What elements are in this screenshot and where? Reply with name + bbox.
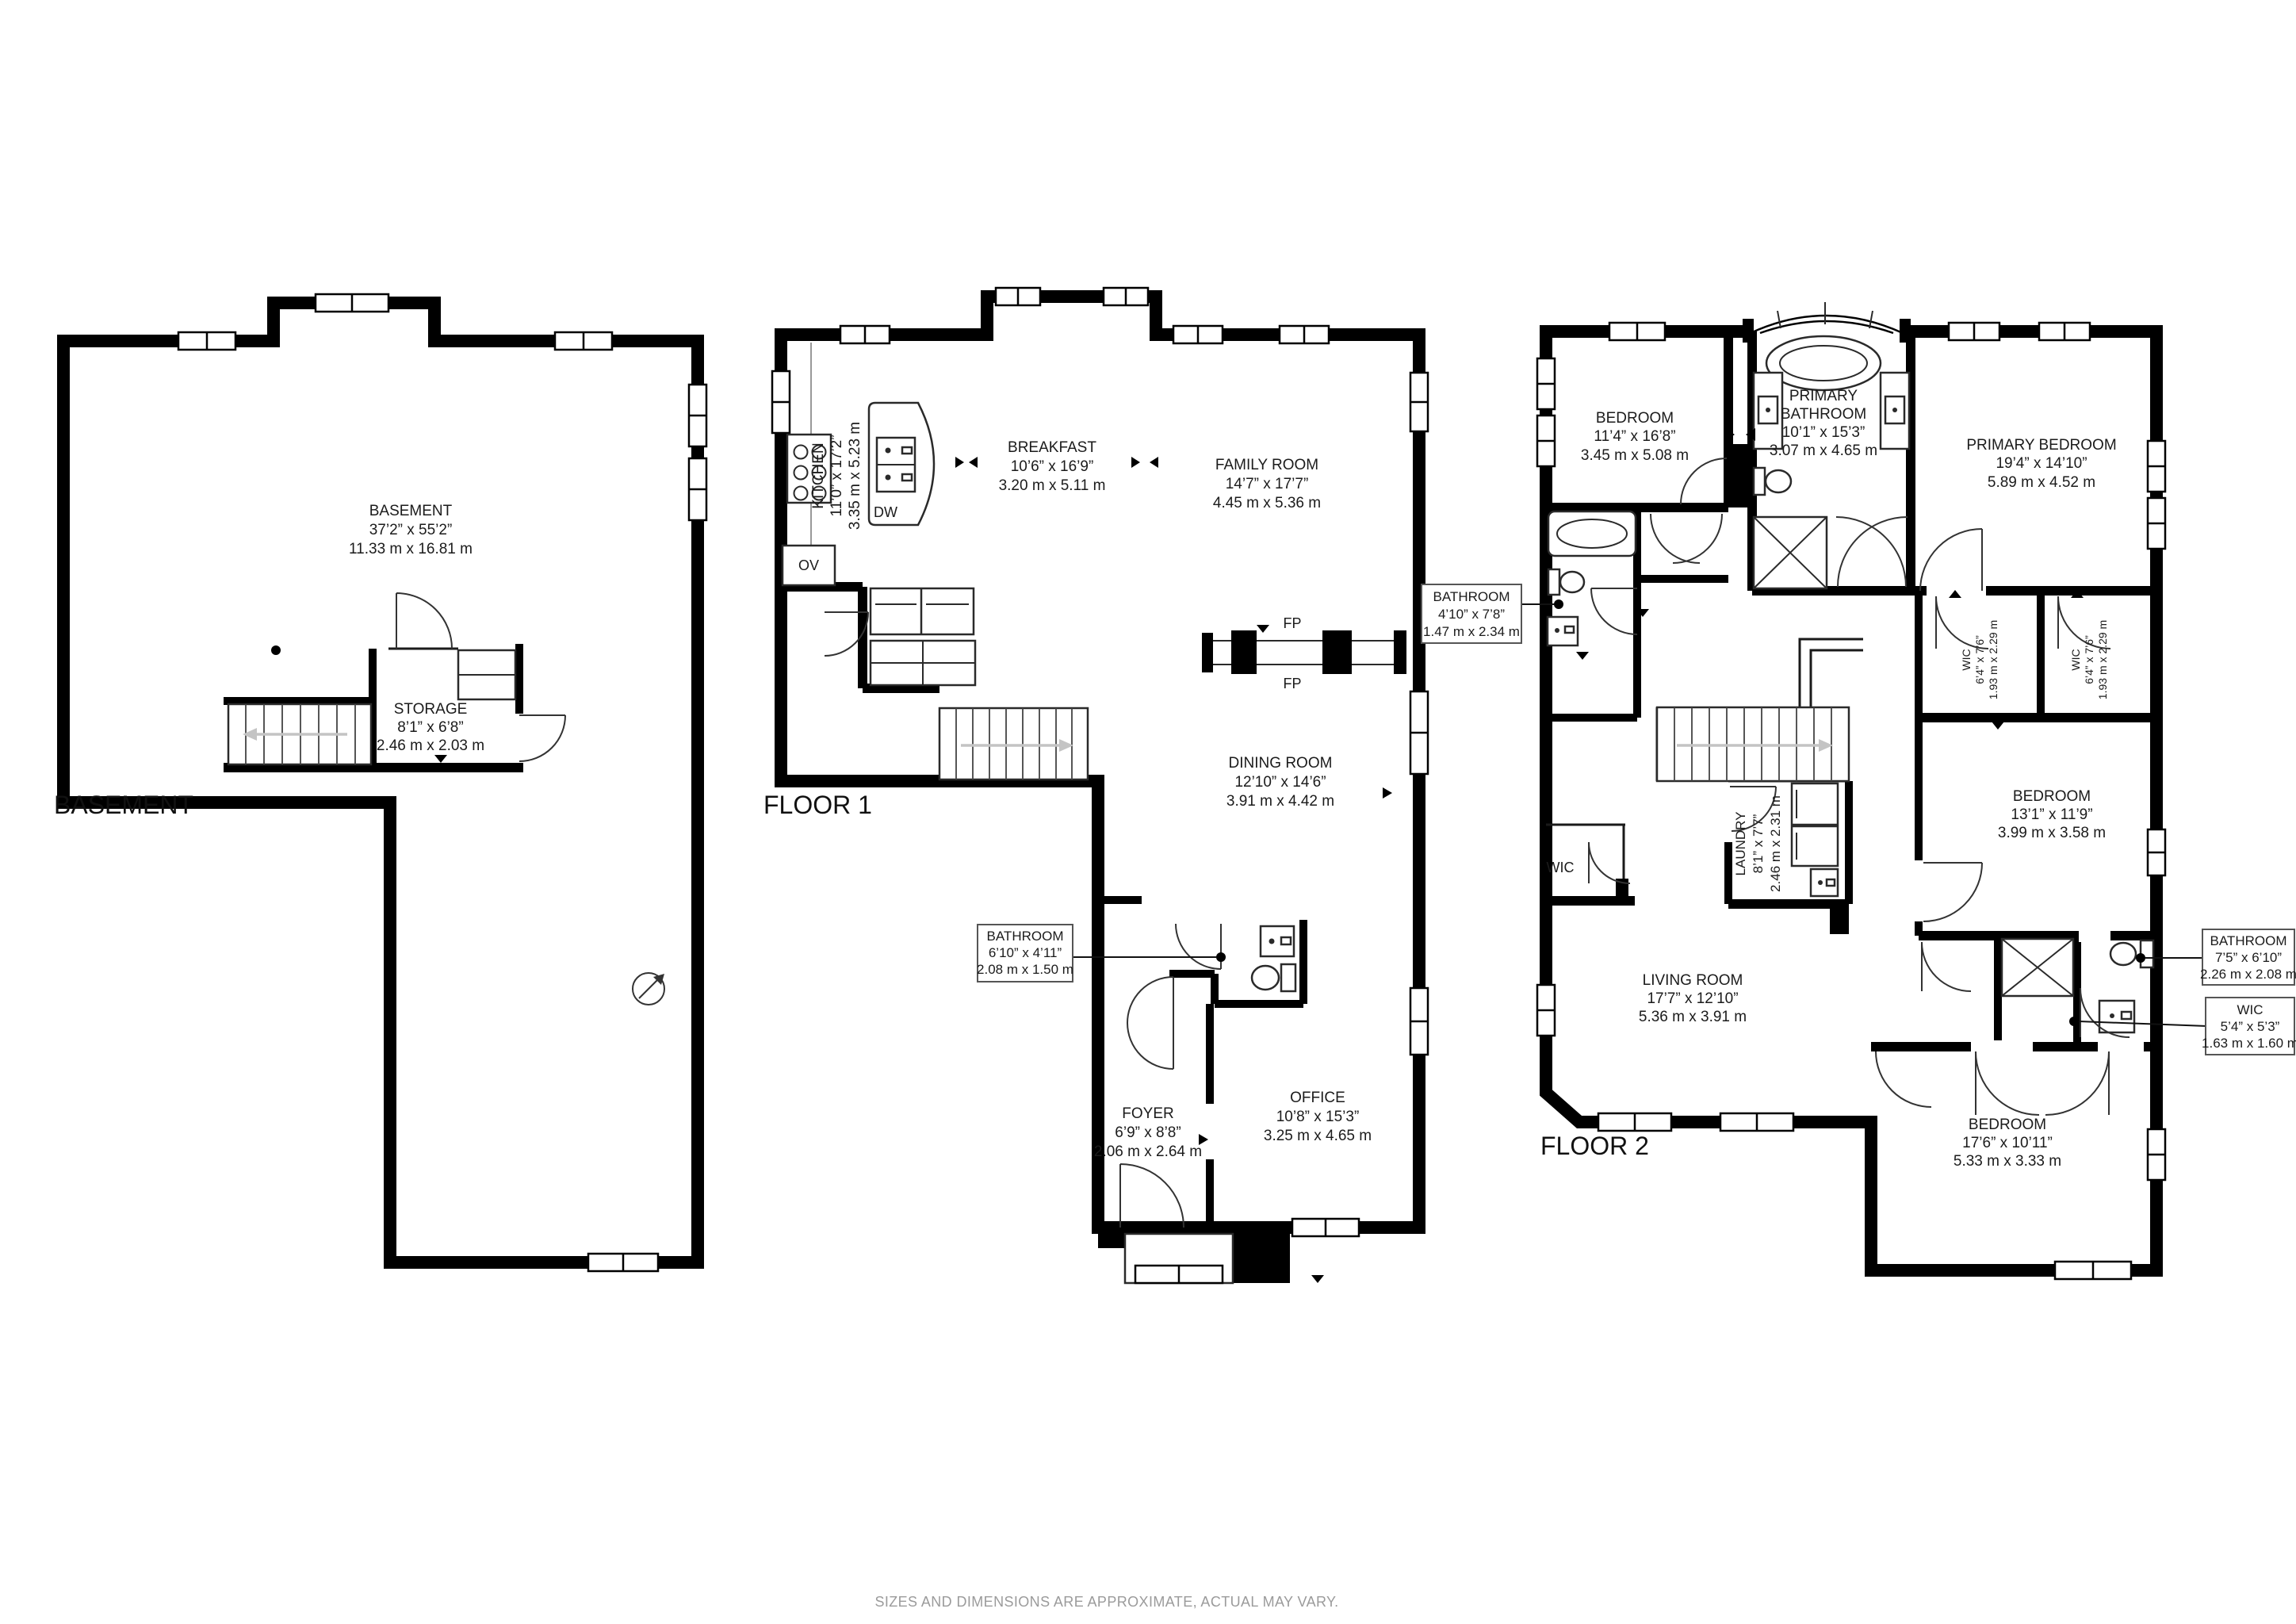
dining-room-label: DINING ROOM 12’10” x 14’6” 3.91 m x 4.42… — [1226, 755, 1334, 810]
bathroom1-imperial: 6’10” x 4’11” — [989, 945, 1062, 960]
office-metric: 3.25 m x 4.65 m — [1264, 1128, 1372, 1144]
kitchen-imperial: 11’0” x 17’2” — [828, 435, 845, 516]
bedroom-mid-label: BEDROOM 13’1” x 11’9” 3.99 m x 3.58 m — [1998, 788, 2106, 841]
bathroom2l-imperial: 4’10” x 7’8” — [1438, 607, 1505, 622]
linen-closet-icon — [2002, 939, 2073, 996]
basement-leader-dot — [271, 645, 281, 655]
foyer-imperial: 6’9” x 8’8” — [1115, 1124, 1181, 1141]
living-room-name: LIVING ROOM — [1643, 972, 1743, 989]
bathroom1-metric: 2.08 m x 1.50 m — [977, 962, 1073, 977]
wic-a-name: WIC — [1960, 649, 1973, 670]
living-room-label: LIVING ROOM 17’7” x 12’10” 5.36 m x 3.91… — [1639, 972, 1747, 1025]
primary-bathroom-imperial: 10’1” x 15’3” — [1782, 424, 1865, 441]
foyer-metric: 2.06 m x 2.64 m — [1094, 1143, 1202, 1160]
basement-title: BASEMENT — [54, 791, 193, 819]
storage-metric: 2.46 m x 2.03 m — [377, 737, 484, 754]
office-name: OFFICE — [1290, 1090, 1345, 1106]
dining-room-name: DINING ROOM — [1229, 755, 1333, 772]
floor1-plan: KITCHEN 11’0” x 17’2” 3.35 m x 5.23 m DW… — [763, 288, 1428, 1283]
bedroom-top-metric: 3.45 m x 5.08 m — [1581, 447, 1689, 464]
kitchen-name: KITCHEN — [810, 442, 827, 508]
family-room-label: FAMILY ROOM 14’7” x 17’7” 4.45 m x 5.36 … — [1213, 457, 1321, 511]
bathroom1-callout-label: BATHROOM 6’10” x 4’11” 2.08 m x 1.50 m — [977, 929, 1073, 977]
bedroom-bottom-label: BEDROOM 17’6” x 10’11” 5.33 m x 3.33 m — [1954, 1116, 2061, 1170]
primary-bathroom-name1: PRIMARY — [1789, 388, 1858, 404]
storage-name: STORAGE — [394, 701, 468, 718]
bedroom-top-name: BEDROOM — [1596, 410, 1674, 427]
powder-sink-icon — [1261, 926, 1294, 956]
primary-toilet-icon — [1754, 468, 1791, 495]
primary-vanity-right-icon — [1881, 373, 1909, 449]
bathroom2r-name: BATHROOM — [2210, 933, 2287, 948]
island-sink-icon — [877, 438, 915, 492]
wic-b-name: WIC — [2069, 649, 2082, 670]
primary-bedroom-metric: 5.89 m x 4.52 m — [1988, 474, 2095, 491]
hall-bath-vanity-icon — [1548, 617, 1578, 645]
laundry-metric: 2.46 m x 2.31 m — [1768, 795, 1783, 892]
dining-room-metric: 3.91 m x 4.42 m — [1226, 793, 1334, 810]
washer-dryer-icon — [1792, 783, 1838, 866]
bathroom1-name: BATHROOM — [987, 929, 1064, 944]
bedroom-top-imperial: 11’4” x 16’8” — [1594, 428, 1675, 445]
bathroom1-leader-dot — [1216, 952, 1226, 962]
primary-vanity-left-icon — [1754, 373, 1782, 449]
bedroom-bottom-metric: 5.33 m x 3.33 m — [1954, 1153, 2061, 1170]
wic-b-metric: 1.93 m x 2.29 m — [2096, 620, 2109, 699]
bedroom-mid-imperial: 13’1” x 11’9” — [2011, 806, 2092, 823]
wic-b-imperial: 6’4” x 7’6” — [2083, 635, 2095, 684]
family-room-imperial: 14’7” x 17’7” — [1226, 476, 1309, 492]
shower-icon — [1754, 517, 1827, 588]
bedroom-top-label: BEDROOM 11’4” x 16’8” 3.45 m x 5.08 m — [1581, 410, 1689, 464]
kitchen-metric: 3.35 m x 5.23 m — [847, 422, 863, 530]
office-imperial: 10’8” x 15’3” — [1276, 1109, 1360, 1125]
bath2-vanity-icon — [2099, 1001, 2134, 1032]
laundry-name: LAUNDRY — [1733, 812, 1748, 876]
floor2-title: FLOOR 2 — [1540, 1132, 1649, 1160]
bathroom2r-imperial: 7’5” x 6’10” — [2215, 950, 2282, 965]
bathroom2r-callout-label: BATHROOM 7’5” x 6’10” 2.26 m x 2.08 m — [2200, 933, 2296, 982]
primary-tub-icon — [1766, 336, 1881, 390]
living-room-metric: 5.36 m x 3.91 m — [1639, 1009, 1747, 1025]
bedroom-bottom-name: BEDROOM — [1969, 1116, 2046, 1133]
basement-plan: BASEMENT 37’2” x 55’2” 11.33 m x 16.81 m… — [54, 294, 706, 1271]
hall-bath-tub-icon — [1548, 511, 1636, 556]
bedroom-bottom-imperial: 17’6” x 10’11” — [1962, 1135, 2053, 1151]
dishwasher-label: DW — [874, 504, 897, 520]
bedroom-mid-name: BEDROOM — [2013, 788, 2091, 805]
primary-bathroom-name2: BATHROOM — [1781, 406, 1866, 423]
laundry-sink-icon — [1811, 869, 1838, 896]
wic-small-label: WIC — [1547, 860, 1575, 875]
wic-a-metric: 1.93 m x 2.29 m — [1987, 620, 1999, 699]
wic-a-imperial: 6’4” x 7’6” — [1973, 635, 1986, 684]
bedroom-mid-metric: 3.99 m x 3.58 m — [1998, 825, 2106, 841]
bathroom2l-metric: 1.47 m x 2.34 m — [1423, 624, 1520, 639]
breakfast-metric: 3.20 m x 5.11 m — [999, 477, 1106, 494]
basement-room-name: BASEMENT — [369, 503, 453, 519]
fireplace-label-top: FP — [1283, 615, 1301, 631]
floor2-plan: BEDROOM 11’4” x 16’8” 3.45 m x 5.08 m PR… — [1422, 302, 2296, 1279]
primary-bedroom-imperial: 19’4” x 14’10” — [1996, 455, 2087, 472]
living-room-imperial: 17’7” x 12’10” — [1647, 990, 1738, 1007]
wic-callout-imperial: 5’4” x 5’3” — [2221, 1019, 2280, 1034]
oven-label: OV — [798, 557, 819, 573]
primary-bedroom-name: PRIMARY BEDROOM — [1966, 437, 2116, 454]
basement-outline-wall — [63, 303, 698, 1262]
footer-disclaimer: SIZES AND DIMENSIONS ARE APPROXIMATE, AC… — [874, 1594, 1338, 1610]
bathroom2r-leader-dot — [2136, 953, 2145, 963]
dining-room-imperial: 12’10” x 14’6” — [1234, 774, 1326, 791]
bathroom2l-leader-dot — [1554, 599, 1563, 609]
powder-toilet-icon — [1252, 964, 1295, 991]
family-room-name: FAMILY ROOM — [1215, 457, 1318, 473]
hall-bath-toilet-icon — [1548, 569, 1584, 595]
laundry-imperial: 8’1” x 7’7” — [1751, 814, 1766, 873]
bathroom2l-name: BATHROOM — [1433, 589, 1510, 604]
breakfast-label: BREAKFAST 10’6” x 16’9” 3.20 m x 5.11 m — [999, 439, 1106, 494]
wic-callout-leader-dot — [2069, 1017, 2079, 1026]
basement-room-imperial: 37’2” x 55’2” — [369, 522, 453, 538]
family-room-metric: 4.45 m x 5.36 m — [1213, 495, 1321, 511]
floor1-title: FLOOR 1 — [763, 791, 872, 819]
breakfast-imperial: 10’6” x 16’9” — [1011, 458, 1094, 475]
wic-callout-metric: 1.63 m x 1.60 m — [2202, 1036, 2296, 1051]
basement-room-metric: 11.33 m x 16.81 m — [349, 541, 473, 557]
foyer-name: FOYER — [1122, 1105, 1173, 1122]
fireplace-label-bottom: FP — [1283, 676, 1301, 691]
floorplan-canvas: BASEMENT 37’2” x 55’2” 11.33 m x 16.81 m… — [0, 0, 2296, 1624]
bathroom2r-metric: 2.26 m x 2.08 m — [2200, 967, 2296, 982]
breakfast-name: BREAKFAST — [1008, 439, 1096, 456]
wic-callout-name: WIC — [2237, 1002, 2263, 1017]
storage-imperial: 8’1” x 6’8” — [397, 719, 463, 736]
primary-bathroom-metric: 3.07 m x 4.65 m — [1770, 442, 1877, 459]
